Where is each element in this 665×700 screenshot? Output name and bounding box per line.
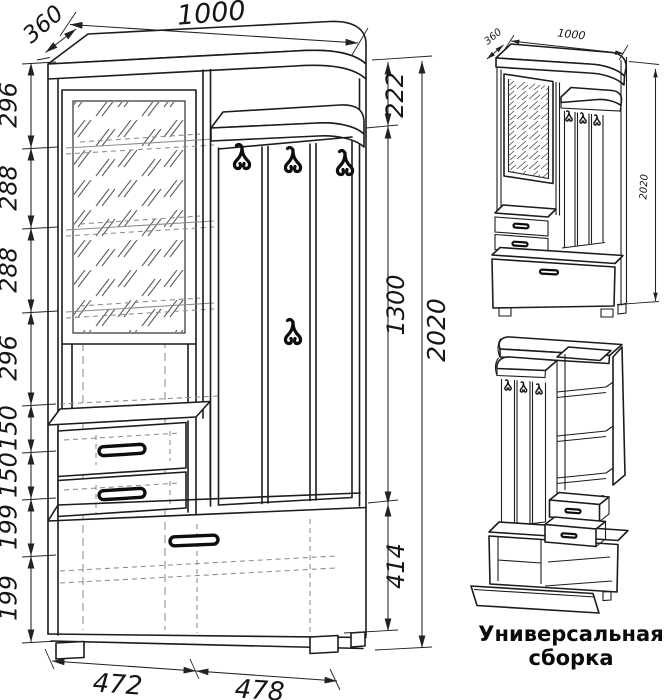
coat-hook-icon (520, 382, 526, 392)
dim-label-478: 478 (234, 674, 286, 700)
dim-label-199-1: 199 (0, 504, 23, 550)
iso-view-rear-assembly (471, 337, 628, 613)
dim-label-150-2: 150 (0, 452, 23, 498)
center-divider (203, 70, 211, 507)
mirror-column-rails (62, 344, 196, 412)
main-front-view (48, 21, 366, 659)
technical-drawing-canvas: 1000 360 296 288 288 296 150 150 199 199 (0, 0, 665, 700)
iso-dim-width: 1000 (557, 26, 586, 42)
left-dimension-chain: 296 288 288 296 150 150 199 199 (0, 62, 58, 643)
dim-label-1300: 1300 (382, 274, 410, 335)
drawer-handle (561, 533, 576, 538)
drawer-handle (512, 242, 527, 247)
foot-left (56, 642, 84, 660)
foot-right (310, 636, 338, 654)
caption-line-2: сборка (529, 646, 614, 670)
furniture-blueprint-page: 1000 360 296 288 288 296 150 150 199 199 (0, 0, 665, 700)
dim-label-288-1: 288 (0, 165, 23, 211)
dim-label-width: 1000 (176, 0, 247, 32)
iso-dim-height: 2020 (638, 174, 650, 200)
caption-line-1: Универсальная (478, 622, 663, 646)
drawer-handle (99, 488, 145, 500)
dim-label-total-height: 2020 (422, 298, 451, 362)
left-side-panel (48, 79, 58, 635)
right-side-panel (360, 79, 367, 636)
dim-label-222: 222 (381, 72, 409, 118)
bottom-dimension-chain: 472 478 (45, 649, 340, 700)
coat-hook-icon (594, 115, 600, 125)
coat-hook-icon (505, 380, 511, 390)
dim-label-414: 414 (382, 543, 410, 589)
coat-hook-icon (536, 384, 542, 394)
cabinet-door-handle (540, 270, 558, 275)
coat-hook-panel (219, 137, 353, 505)
cabinet-door-handle (170, 535, 218, 546)
bottom-cabinet (48, 493, 366, 659)
foot-far-right (351, 632, 365, 647)
drawer-handle (513, 224, 528, 229)
right-upper-shelf (211, 105, 364, 147)
dim-label-472: 472 (92, 668, 144, 700)
dim-label-depth: 360 (18, 1, 68, 49)
coat-hook-icon (580, 113, 586, 123)
assembly-caption: Универсальная сборка (478, 622, 663, 670)
dim-label-296-1: 296 (0, 82, 23, 128)
dim-label-199-2: 199 (0, 575, 23, 621)
dim-label-150-1: 150 (0, 405, 23, 451)
iso-view-assembled: 360 1000 2020 (483, 26, 659, 317)
coat-hook-icon (566, 111, 572, 121)
drawer-unit (48, 396, 218, 517)
coat-hook-icon (337, 150, 352, 174)
iso-mirror-hatch (509, 79, 549, 179)
iso-dim-depth: 360 (483, 27, 505, 48)
dim-label-296-2: 296 (0, 335, 23, 381)
drawer-handle (99, 444, 145, 456)
iso-side-panel (613, 347, 625, 485)
drawer-handle (565, 509, 580, 514)
dim-label-288-2: 288 (0, 247, 23, 293)
coat-hook-icon (285, 319, 300, 343)
mirror-glass-hatch (74, 102, 184, 332)
coat-hook-icon (285, 147, 300, 171)
top-canopy-shelf (48, 21, 366, 79)
